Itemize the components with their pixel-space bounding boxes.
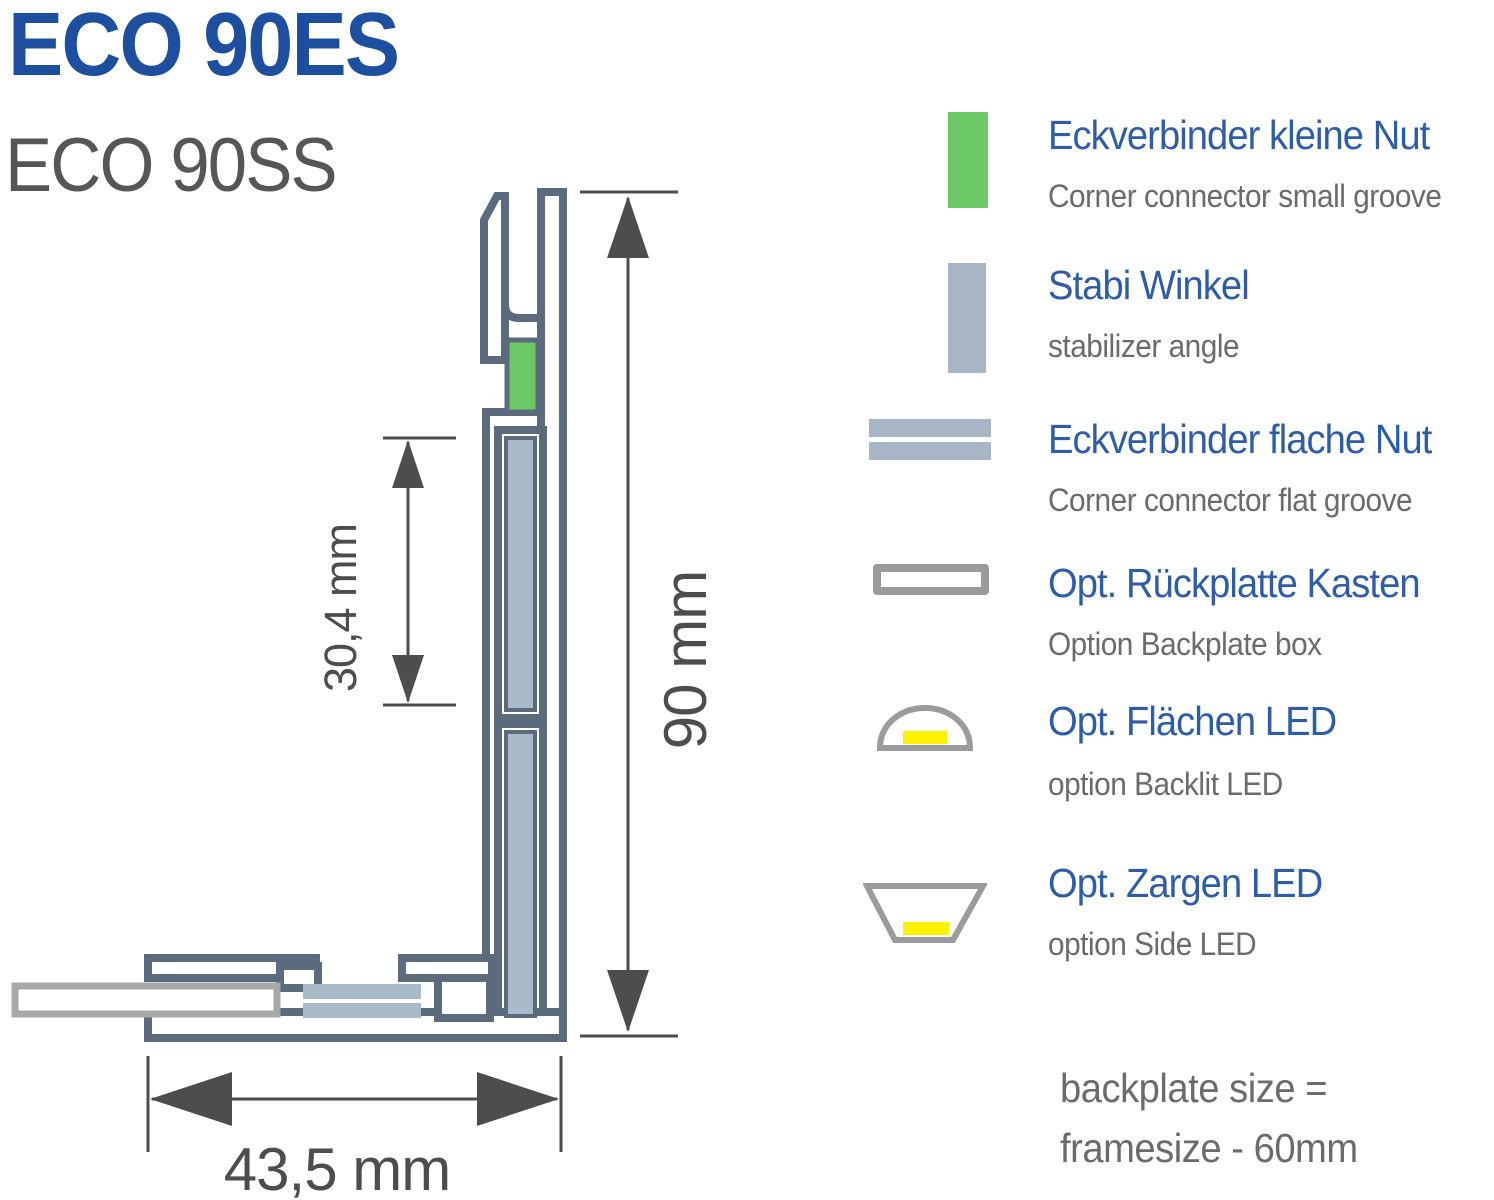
- legend-item-stabi-title: Stabi Winkel: [1048, 262, 1249, 309]
- backplate: [15, 986, 277, 1014]
- stabilizer-angle-icon: [948, 263, 986, 373]
- legend-item-backplate-title: Opt. Rückplatte Kasten: [1048, 560, 1420, 607]
- side-led-icon: [863, 882, 987, 944]
- legend-item-side-led-title: Opt. Zargen LED: [1048, 860, 1322, 907]
- legend-item-side-led-subtitle: option Side LED: [1048, 926, 1256, 963]
- legend-item-backlit-led-subtitle: option Backlit LED: [1048, 766, 1283, 803]
- profile-top-flange: [484, 196, 505, 360]
- dim-width-label: 43,5 mm: [224, 1136, 450, 1200]
- flat-groove-icon: [869, 442, 991, 460]
- page: ECO 90ES ECO 90SS: [0, 0, 1494, 1200]
- green-connector-icon: [948, 112, 988, 208]
- legend-item-flat-groove-subtitle: Corner connector flat groove: [1048, 482, 1412, 519]
- backplate-size-note: backplate size = framesize - 60mm: [1060, 1058, 1358, 1178]
- profile-foot-cavity: [438, 978, 490, 1018]
- legend-item-backlit-led-title: Opt. Flächen LED: [1048, 698, 1336, 745]
- note-line-2: framesize - 60mm: [1060, 1125, 1358, 1171]
- flat-groove-connector: [303, 984, 421, 1018]
- legend-item-backplate-subtitle: Option Backplate box: [1048, 626, 1322, 663]
- small-groove-connector: [507, 340, 538, 412]
- legend-item-stabi-subtitle: stabilizer angle: [1048, 328, 1239, 365]
- profile-cross-section-diagram: 90 mm 30,4 mm 43,5 mm: [0, 0, 790, 1200]
- legend-item-small-groove-subtitle: Corner connector small groove: [1048, 178, 1441, 215]
- dim-height-label: 90 mm: [652, 571, 719, 749]
- backlit-led-icon: [876, 704, 974, 752]
- dim-groove-label: 30,4 mm: [315, 524, 366, 692]
- legend-item-small-groove-title: Eckverbinder kleine Nut: [1048, 112, 1429, 159]
- note-line-1: backplate size =: [1060, 1065, 1327, 1111]
- legend-item-flat-groove-title: Eckverbinder flache Nut: [1048, 416, 1431, 463]
- profile-small-groove-channel: [505, 196, 541, 318]
- flat-groove-icon: [869, 419, 991, 437]
- backplate-box-icon: [873, 564, 989, 595]
